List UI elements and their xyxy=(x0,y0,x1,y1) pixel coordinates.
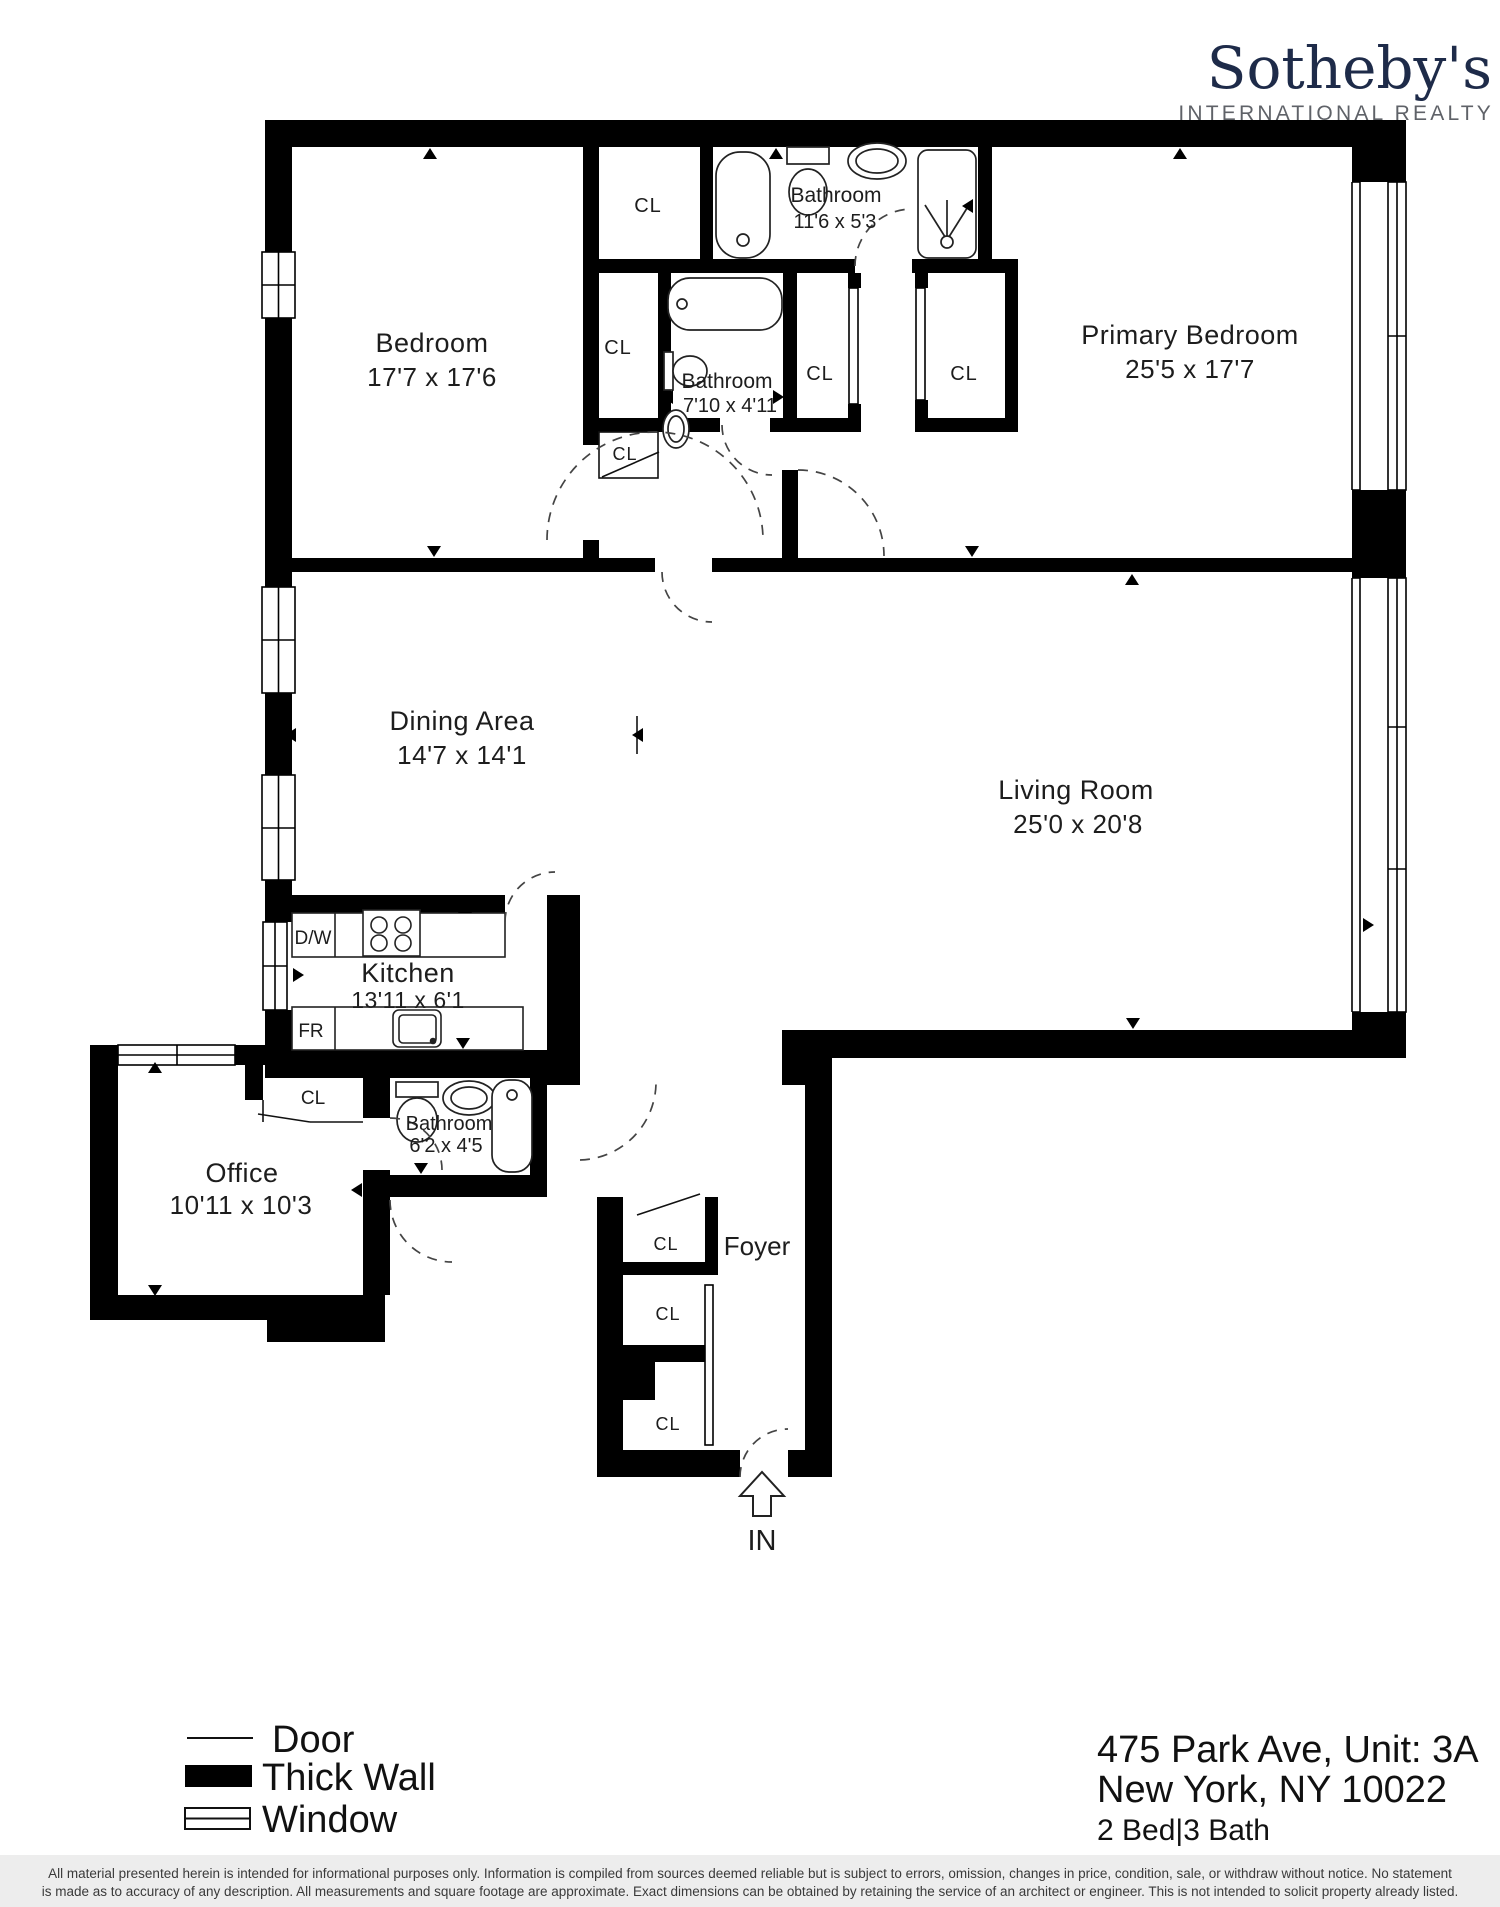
foyer-label: Foyer xyxy=(724,1231,791,1261)
door-arcs xyxy=(390,209,912,1477)
primary-bedroom-windows xyxy=(1352,182,1406,490)
disclaimer-line1: All material presented herein is intende… xyxy=(48,1866,1452,1881)
closet-label: CL xyxy=(301,1088,325,1109)
floor-plan-page: Bedroom 17'7 x 17'6 Bathroom 11'6 x 5'3 … xyxy=(0,0,1500,1907)
kitchen-dims: 13'11 x 6'1 xyxy=(351,987,465,1013)
kitchen-sink-icon xyxy=(393,1010,441,1047)
brand-tagline: INTERNATIONAL REALTY xyxy=(1178,102,1494,125)
window-symbol xyxy=(185,1808,250,1829)
bathroom3-dims: 6'2 x 4'5 xyxy=(409,1135,482,1157)
thick-wall-symbol xyxy=(185,1765,252,1787)
address-line2: New York, NY 10022 xyxy=(1097,1769,1447,1811)
primary-bedroom-dims: 25'5 x 17'7 xyxy=(1125,354,1255,384)
legend-door-label: Door xyxy=(272,1719,355,1761)
room-labels: Bedroom 17'7 x 17'6 Bathroom 11'6 x 5'3 … xyxy=(170,184,1299,1557)
closet-label: CL xyxy=(806,363,834,385)
closet-label: CL xyxy=(612,444,637,464)
address-line1: 475 Park Ave, Unit: 3A xyxy=(1097,1729,1479,1771)
address-block: 475 Park Ave, Unit: 3A New York, NY 1002… xyxy=(1097,1729,1479,1847)
office-label: Office xyxy=(205,1158,278,1188)
fridge-label: FR xyxy=(298,1021,323,1042)
living-room-label: Living Room xyxy=(998,775,1154,805)
disclaimer: All material presented herein is intende… xyxy=(0,1855,1500,1907)
closet-label: CL xyxy=(655,1304,680,1324)
bathtub-icon xyxy=(492,1080,532,1172)
living-room-dims: 25'0 x 20'8 xyxy=(1013,809,1143,839)
legend-window-label: Window xyxy=(262,1799,398,1841)
kitchen-window xyxy=(263,922,287,1010)
primary-bedroom-label: Primary Bedroom xyxy=(1081,320,1299,350)
disclaimer-background xyxy=(0,1855,1500,1907)
closet-label: CL xyxy=(634,195,662,217)
stove-icon xyxy=(363,910,420,956)
closet-label: CL xyxy=(950,363,978,385)
dining-area-dims: 14'7 x 14'1 xyxy=(397,740,527,770)
legend-thick-wall-label: Thick Wall xyxy=(262,1757,436,1799)
dining-window-2 xyxy=(262,775,295,880)
bedroom-dims: 17'7 x 17'6 xyxy=(367,362,497,392)
bathroom1-dims: 11'6 x 5'3 xyxy=(794,211,877,233)
address-meta: 2 Bed|3 Bath xyxy=(1097,1814,1270,1847)
legend: Door Thick Wall Window xyxy=(185,1719,436,1841)
disclaimer-line2: is made as to accuracy of any descriptio… xyxy=(42,1884,1459,1899)
brand-logo: Sotheby's INTERNATIONAL REALTY xyxy=(1178,34,1494,125)
bathroom1-label: Bathroom xyxy=(790,184,881,207)
bathroom3-label: Bathroom xyxy=(406,1113,493,1135)
office-window xyxy=(118,1045,235,1065)
sink-icon xyxy=(848,143,906,179)
bathroom2-dims: 7'10 x 4'11 xyxy=(683,395,777,417)
bedroom-label: Bedroom xyxy=(375,328,488,358)
bathtub-icon xyxy=(668,278,782,330)
floor-plan-canvas: Bedroom 17'7 x 17'6 Bathroom 11'6 x 5'3 … xyxy=(0,0,1500,1907)
living-room-windows xyxy=(1352,578,1406,1012)
closet-label: CL xyxy=(655,1414,680,1434)
dining-window-1 xyxy=(262,587,295,693)
bedroom-window xyxy=(262,252,295,318)
closet-label: CL xyxy=(653,1234,678,1254)
closet-label: CL xyxy=(604,337,632,359)
sink-icon xyxy=(443,1081,495,1115)
dining-area-label: Dining Area xyxy=(389,706,535,736)
office-dims: 10'11 x 10'3 xyxy=(170,1190,313,1220)
entry-arrow-icon xyxy=(740,1472,784,1516)
bathtub-icon xyxy=(716,152,770,258)
kitchen-label: Kitchen xyxy=(361,958,455,988)
dishwasher-label: D/W xyxy=(295,928,332,949)
bathroom2-label: Bathroom xyxy=(681,370,772,393)
entry-in-label: IN xyxy=(748,1525,777,1557)
brand-name: Sotheby's xyxy=(1207,34,1492,102)
